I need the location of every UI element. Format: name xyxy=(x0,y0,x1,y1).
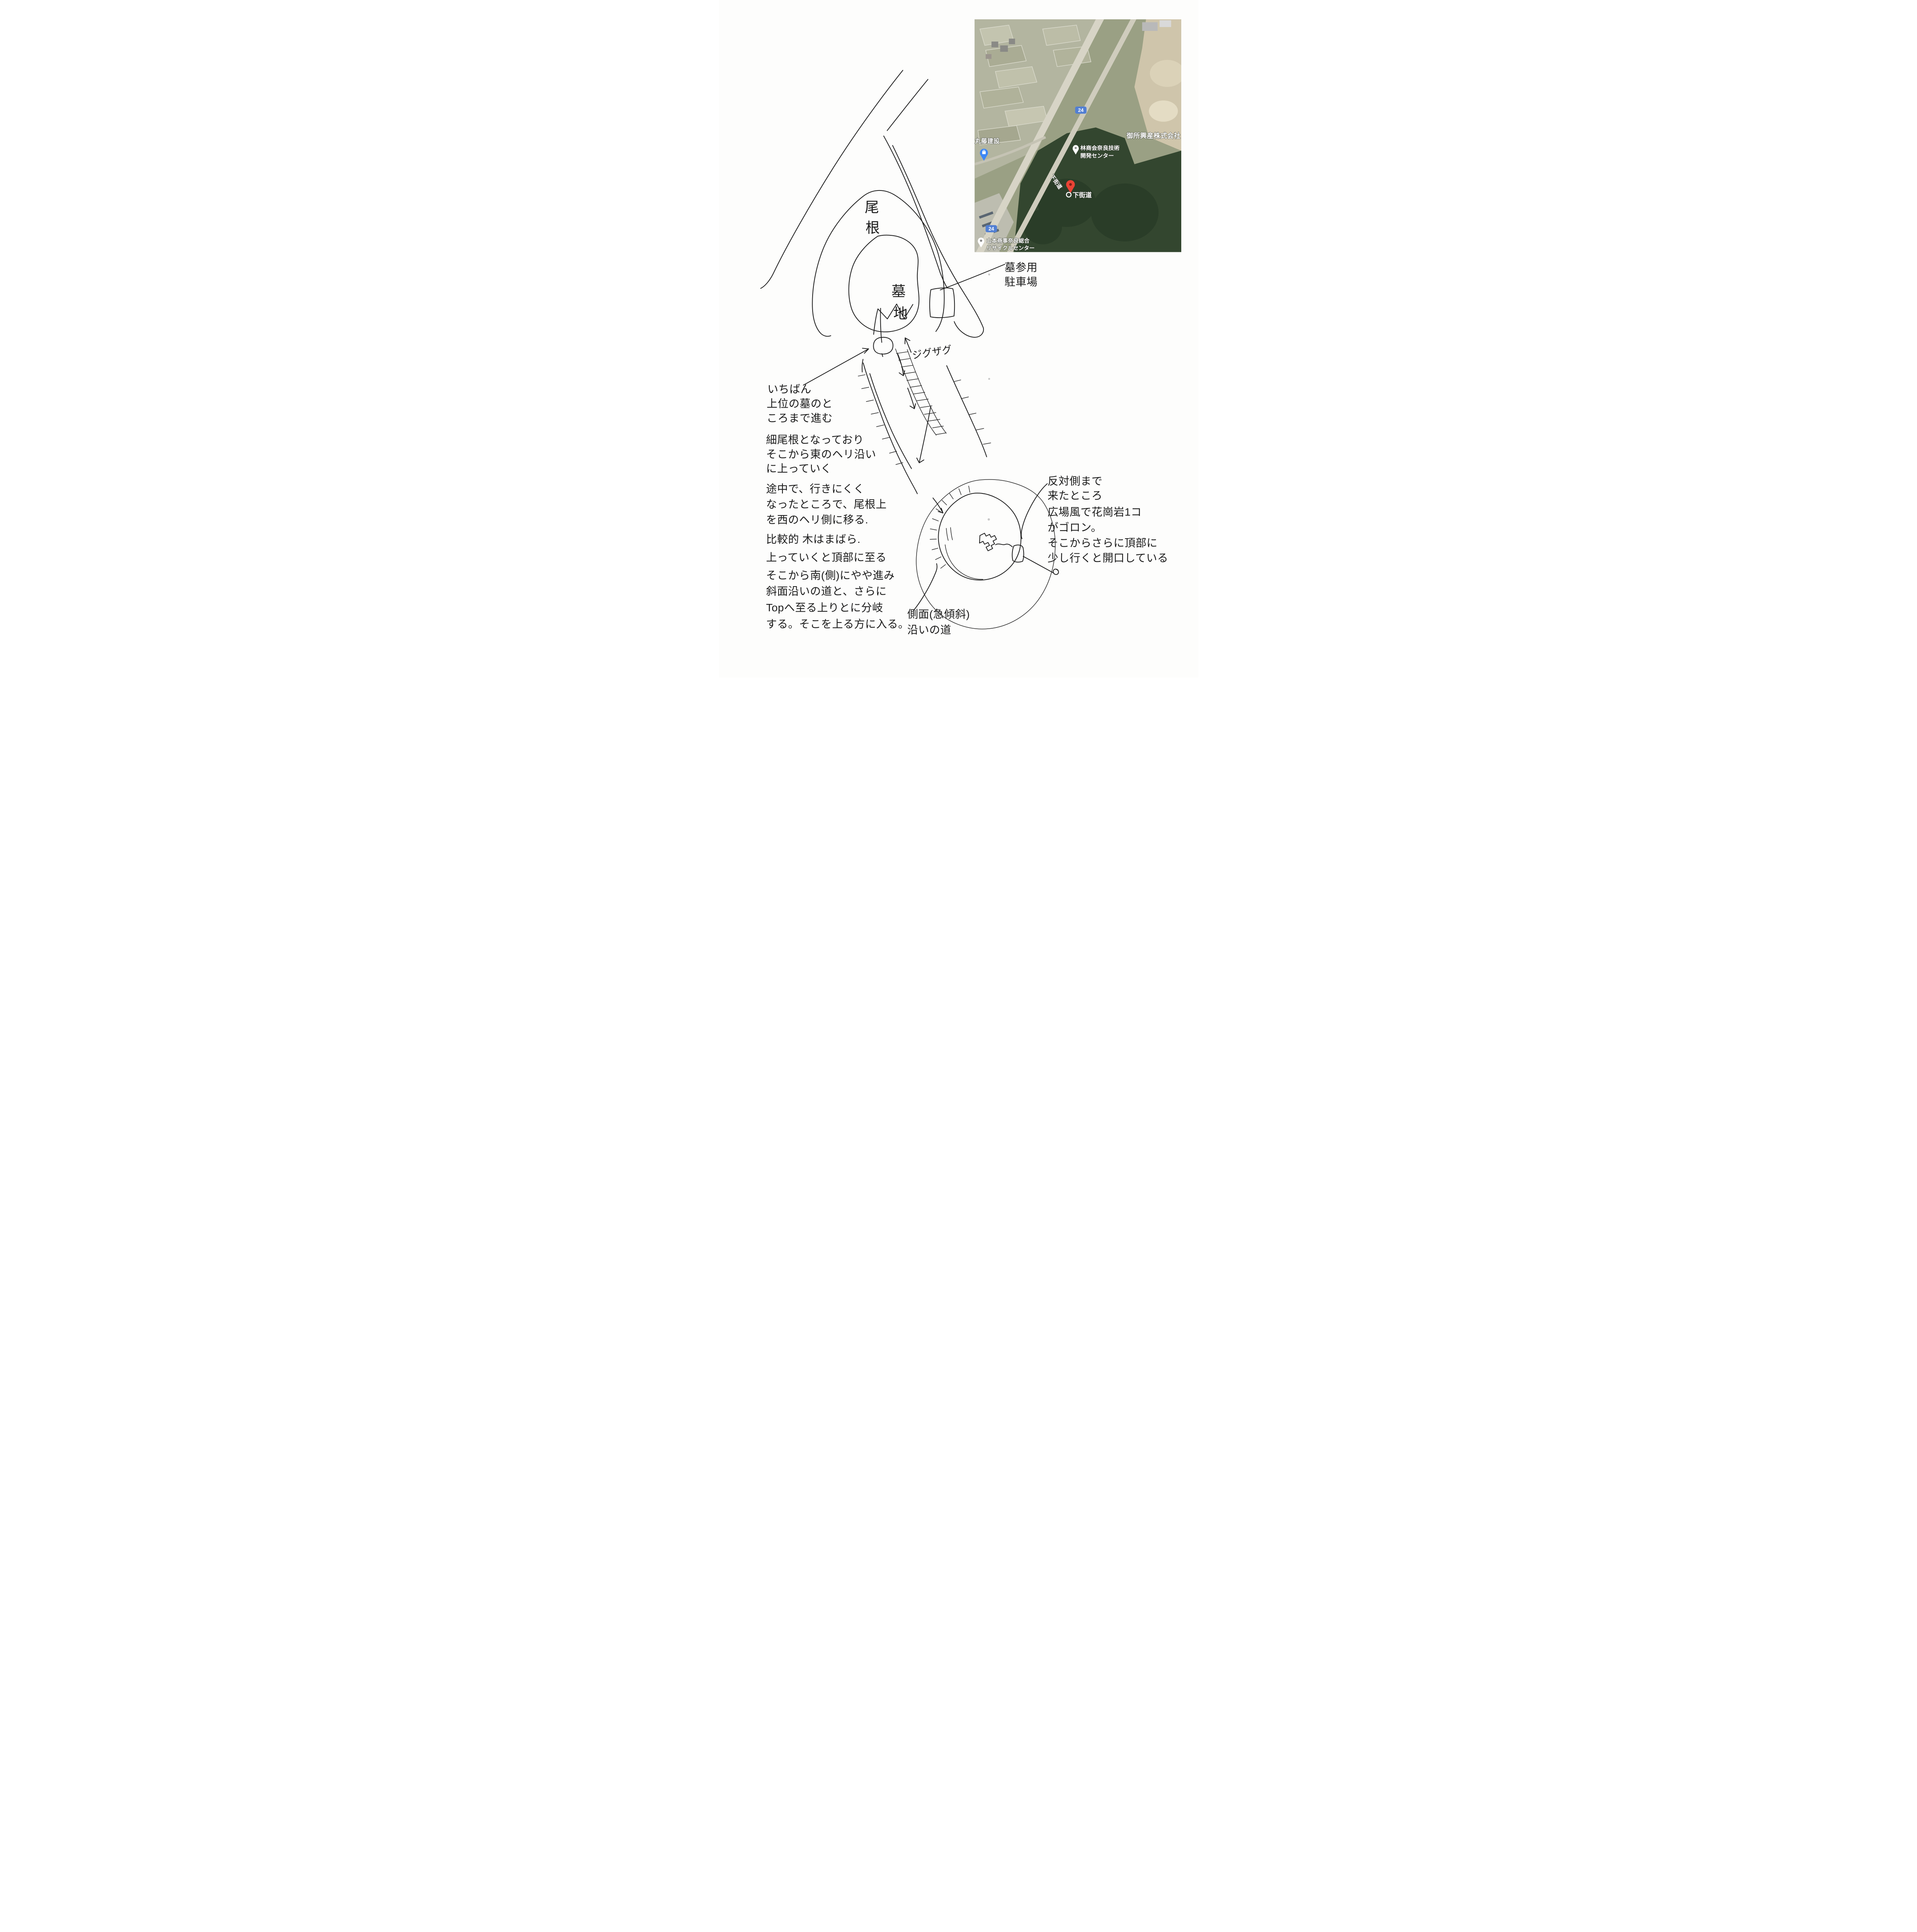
shopping-bag-icon xyxy=(982,151,985,154)
note-line: 来たところ xyxy=(1047,490,1102,502)
tech-center-label-line2: 開発センター xyxy=(1080,152,1114,159)
quarry-patch xyxy=(1149,100,1178,122)
ridge-label-char2: 根 xyxy=(865,220,879,236)
note-line: する。そこを上る方に入る。 xyxy=(766,618,909,630)
note-line: 斜面沿いの道と、さらに xyxy=(766,585,886,597)
note-line: なったところで、尾根上 xyxy=(766,498,886,510)
note-line: 比較的 木はまばら. xyxy=(766,533,860,545)
industrial-company-label: 御所興産株式会社 xyxy=(1126,132,1180,139)
route-number: 24 xyxy=(988,226,994,231)
note-line: 広場風で花崗岩1コ xyxy=(1047,506,1141,518)
note-line: ころまで進む xyxy=(766,412,832,424)
note-line: を西のヘリ側に移る. xyxy=(766,514,868,526)
satellite-map-inset: 24 24 丸藤建設 林商会奈良技術 開発センター 御所興産株式会社 下街道 xyxy=(974,19,1184,252)
note-line: 側面(急傾斜) xyxy=(907,608,970,620)
note-line: 反対側まで xyxy=(1047,475,1102,487)
note-line: そこから東のヘリ沿い xyxy=(766,448,876,460)
note-line: そこから南(側)にやや進み xyxy=(766,569,895,581)
factory-building xyxy=(1142,22,1157,31)
note-line: に上っていく xyxy=(766,463,832,474)
note-line: 上位の墓のと xyxy=(766,398,832,410)
scanned-route-note-page: 尾 根 墓 地 墓参用 駐車場 ジグザグ いちばん 上位の墓のと ころまで進む … xyxy=(719,0,1198,678)
construction-company-label: 丸藤建設 xyxy=(974,137,1000,145)
route-number: 24 xyxy=(1078,107,1084,113)
note-line: いちばん xyxy=(767,383,811,395)
ridge-label-char1: 尾 xyxy=(864,199,879,215)
route-badge-24-lower: 24 xyxy=(985,225,997,232)
note-line: がゴロン。 xyxy=(1047,522,1102,534)
route-badge-24-upper: 24 xyxy=(1075,107,1086,114)
note-line: 上っていくと頂部に至る xyxy=(766,551,886,563)
parking-label-line1: 墓参用 xyxy=(1004,261,1037,273)
cemetery-label-char2: 地 xyxy=(893,306,907,321)
recycle-center-label-line2: リサイクルセンター xyxy=(986,245,1034,251)
recycle-center-label-line1: 山本商事奈良総合 xyxy=(986,238,1030,244)
note-line: 沿いの道 xyxy=(907,624,951,636)
tech-center-label-line1: 林商会奈良技術 xyxy=(1080,145,1119,151)
note-line: そこからさらに頂部に xyxy=(1047,537,1157,549)
note-line: Topへ至る上りとに分岐 xyxy=(766,602,883,614)
quarry-patch xyxy=(1150,60,1184,87)
parking-label-line2: 駐車場 xyxy=(1004,276,1037,288)
note-line: 細尾根となっており xyxy=(766,434,864,446)
note-line: 途中で、行きにくく xyxy=(766,483,864,495)
dropped-pin-label: 下街道 xyxy=(1072,191,1092,199)
cemetery-label-char1: 墓 xyxy=(891,283,905,299)
factory-building xyxy=(1159,20,1171,27)
route-sketch-canvas: 尾 根 墓 地 墓参用 駐車場 ジグザグ いちばん 上位の墓のと ころまで進む … xyxy=(719,0,1198,678)
note-line: 少し行くと開口している xyxy=(1047,552,1168,564)
